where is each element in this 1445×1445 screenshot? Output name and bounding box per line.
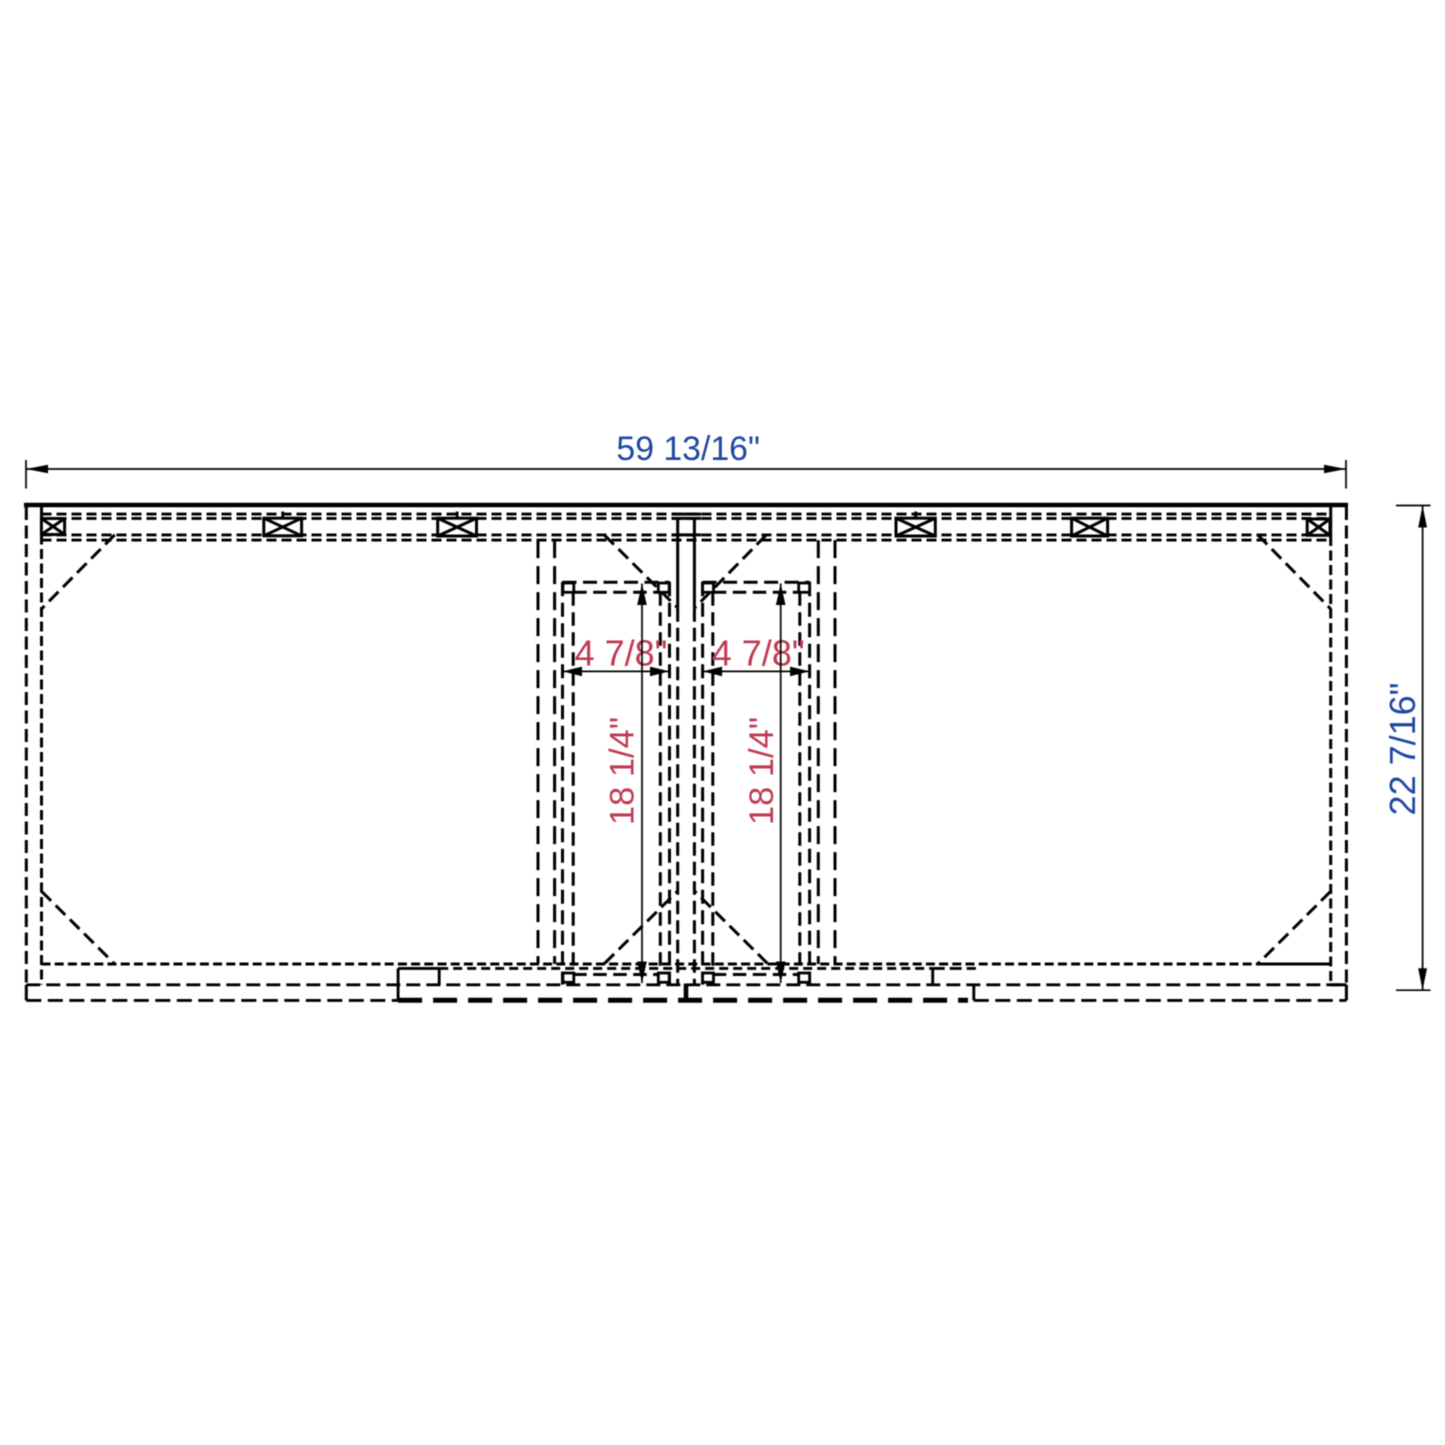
svg-text:18 1/4": 18 1/4"	[604, 717, 642, 825]
svg-text:59 13/16": 59 13/16"	[616, 430, 760, 468]
svg-text:22 7/16": 22 7/16"	[1382, 683, 1423, 816]
svg-text:4 7/8": 4 7/8"	[575, 633, 668, 674]
svg-text:18 1/4": 18 1/4"	[743, 717, 781, 825]
svg-text:4 7/8": 4 7/8"	[712, 633, 805, 674]
